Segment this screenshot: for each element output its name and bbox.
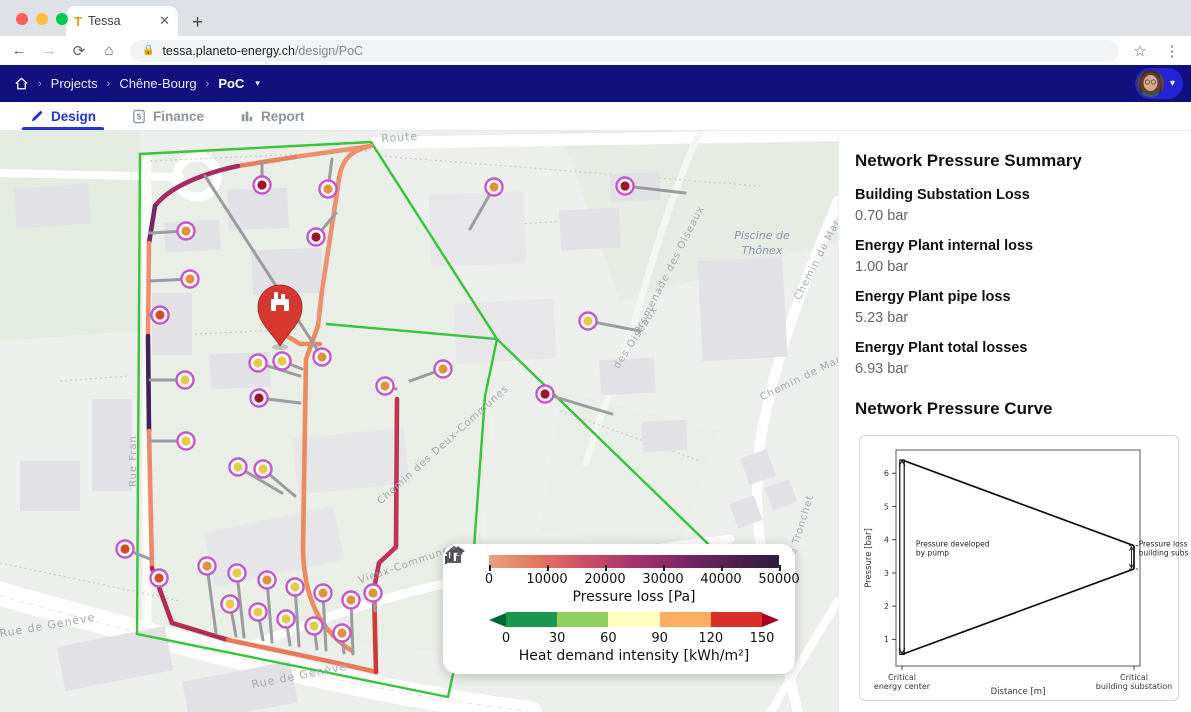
minimize-window-button[interactable]	[36, 13, 48, 25]
curve-title: Network Pressure Curve	[855, 399, 1191, 419]
building-node[interactable]	[152, 307, 169, 324]
building-node[interactable]	[537, 386, 554, 403]
reload-icon[interactable]: ⟳	[70, 42, 88, 60]
browser-tab-title: Tessa	[88, 14, 153, 28]
address-bar[interactable]: 🔒 tessa.planeto-energy.ch/design/PoC	[130, 40, 1119, 62]
building-node[interactable]	[259, 572, 276, 589]
summary-item: Energy Plant total losses 6.93 bar	[855, 340, 1191, 377]
svg-text:5: 5	[884, 502, 889, 511]
building-node[interactable]	[254, 177, 271, 194]
bar-chart-icon	[240, 109, 254, 123]
heat-colorbar	[489, 612, 779, 627]
building-node[interactable]	[182, 271, 199, 288]
colorbar-tick-label: 90	[651, 631, 668, 646]
building-node[interactable]	[199, 558, 216, 575]
colorbar-tick-label: 150	[750, 631, 775, 646]
pressure-curve-card: 123456Pressure [bar]Criticalenergy cente…	[859, 435, 1179, 701]
pressure-colorbar-label: Pressure loss [Pa]	[489, 589, 779, 605]
design-map[interactable]: RoutePromenade des Oiseauxdes OiseauxChe…	[0, 131, 838, 712]
bookmark-star-icon[interactable]: ☆	[1131, 42, 1149, 60]
browser-toolbar: ← → ⟳ ⌂ 🔒 tessa.planeto-energy.ch/design…	[0, 36, 1191, 65]
breadcrumb: › Projects › Chêne-Bourg › PoC ▾	[14, 76, 260, 91]
building-node[interactable]	[278, 611, 295, 628]
summary-item-value: 0.70 bar	[855, 208, 1191, 224]
chevron-down-icon: ▾	[1170, 78, 1175, 89]
building-node[interactable]	[222, 596, 239, 613]
tab-report-label: Report	[261, 109, 305, 124]
building-node[interactable]	[377, 378, 394, 395]
building-node[interactable]	[343, 592, 360, 609]
building-node[interactable]	[315, 585, 332, 602]
breadcrumb-project-current[interactable]: PoC	[218, 76, 244, 91]
building-node[interactable]	[435, 361, 452, 378]
pressure-legend-row: 01000020000300004000050000 Pressure loss…	[455, 555, 779, 605]
svg-text:Distance [m]: Distance [m]	[991, 687, 1046, 697]
building-node[interactable]	[229, 565, 246, 582]
heat-colorbar-ticks: 0306090120150	[506, 631, 762, 646]
tab-design-label: Design	[51, 109, 96, 124]
app-header: › Projects › Chêne-Bourg › PoC ▾ ▾	[0, 65, 1191, 102]
building-node[interactable]	[230, 459, 247, 476]
tab-report[interactable]: Report	[226, 102, 319, 130]
svg-text:Pressure [bar]: Pressure [bar]	[864, 528, 874, 588]
pressure-colorbar	[489, 555, 779, 568]
chevron-down-icon[interactable]: ▾	[255, 78, 260, 89]
colorbar-tick-label: 10000	[526, 572, 567, 587]
svg-text:3: 3	[884, 569, 889, 578]
building-node[interactable]	[151, 570, 168, 587]
svg-text:$: $	[137, 111, 142, 121]
building-node[interactable]	[365, 585, 382, 602]
summary-item-value: 1.00 bar	[855, 259, 1191, 275]
building-node[interactable]	[617, 178, 634, 195]
colorbar-tick-label: 30	[549, 631, 566, 646]
summary-item-label: Energy Plant internal loss	[855, 238, 1191, 254]
building-node[interactable]	[117, 541, 134, 558]
window-controls[interactable]	[16, 13, 68, 25]
pressure-curve-chart: 123456Pressure [bar]Criticalenergy cente…	[862, 438, 1188, 698]
colorbar-tick-label: 0	[485, 572, 493, 587]
building-node[interactable]	[486, 179, 503, 196]
url-path: /design/PoC	[295, 44, 363, 58]
summary-title: Network Pressure Summary	[855, 151, 1191, 171]
pencil-icon	[30, 109, 44, 123]
breadcrumb-city[interactable]: Chêne-Bourg	[119, 76, 196, 91]
building-node[interactable]	[334, 625, 351, 642]
map-legend: 01000020000300004000050000 Pressure loss…	[443, 544, 795, 674]
building-node[interactable]	[251, 390, 268, 407]
zoom-window-button[interactable]	[56, 13, 68, 25]
colorbar-tick-label: 120	[698, 631, 723, 646]
favicon: T	[74, 14, 82, 29]
svg-text:2: 2	[884, 602, 889, 611]
heat-legend-row: 0306090120150 Heat demand intensity [kWh…	[455, 612, 779, 664]
summary-item-label: Energy Plant total losses	[855, 340, 1191, 356]
svg-text:Pressure lossbuilding substati: Pressure lossbuilding substation	[1139, 539, 1188, 557]
building-node[interactable]	[314, 349, 331, 366]
building-node[interactable]	[306, 618, 323, 635]
building-node[interactable]	[320, 181, 337, 198]
svg-text:6: 6	[884, 469, 889, 478]
svg-text:1: 1	[884, 635, 889, 644]
browser-tab-strip: T Tessa ✕ +	[0, 0, 1191, 36]
pressure-panel: Network Pressure Summary Building Substa…	[838, 131, 1191, 712]
home-icon[interactable]: ⌂	[100, 42, 118, 59]
tab-finance[interactable]: $ Finance	[118, 102, 218, 130]
svg-text:Criticalbuilding substation: Criticalbuilding substation	[1096, 673, 1172, 691]
building-node[interactable]	[308, 229, 325, 246]
profile-menu[interactable]: ▾	[1135, 68, 1183, 99]
url-host: tessa.planeto-energy.ch	[162, 44, 295, 58]
tab-finance-label: Finance	[153, 109, 204, 124]
new-tab-button[interactable]: +	[192, 13, 203, 32]
summary-item: Energy Plant pipe loss 5.23 bar	[855, 289, 1191, 326]
building-node[interactable]	[250, 604, 267, 621]
building-node[interactable]	[287, 579, 304, 596]
summary-item-value: 5.23 bar	[855, 310, 1191, 326]
breadcrumb-projects[interactable]: Projects	[51, 76, 98, 91]
breadcrumb-home-icon[interactable]	[14, 76, 29, 91]
back-icon[interactable]: ←	[10, 42, 28, 59]
pressure-colorbar-ticks: 01000020000300004000050000	[489, 572, 779, 587]
chevron-right-icon: ›	[107, 78, 111, 90]
tab-close-icon[interactable]: ✕	[159, 13, 170, 29]
summary-item: Building Substation Loss 0.70 bar	[855, 187, 1191, 224]
tab-design[interactable]: Design	[16, 102, 110, 130]
summary-item: Energy Plant internal loss 1.00 bar	[855, 238, 1191, 275]
building-node[interactable]	[580, 313, 597, 330]
building-node[interactable]	[255, 461, 272, 478]
app-tab-bar: Design $ Finance Report	[0, 102, 1191, 131]
building-node[interactable]	[178, 433, 195, 450]
colorbar-tick-label: 40000	[700, 572, 741, 587]
building-node[interactable]	[178, 223, 195, 240]
building-node[interactable]	[250, 355, 267, 372]
browser-tab[interactable]: T Tessa ✕	[66, 6, 178, 36]
chevron-right-icon: ›	[206, 78, 210, 90]
padlock-icon[interactable]: 🔒	[142, 45, 154, 56]
svg-text:Criticalenergy center: Criticalenergy center	[874, 673, 931, 691]
colorbar-tick-label: 20000	[584, 572, 625, 587]
summary-item-label: Building Substation Loss	[855, 187, 1191, 203]
street-label: Rue Fran	[128, 435, 139, 487]
house-icon	[455, 612, 479, 614]
avatar	[1137, 70, 1164, 97]
summary-item-value: 6.93 bar	[855, 361, 1191, 377]
building-node[interactable]	[274, 353, 291, 370]
building-node[interactable]	[177, 372, 194, 389]
colorbar-tick-label: 60	[600, 631, 617, 646]
summary-item-label: Energy Plant pipe loss	[855, 289, 1191, 305]
chevron-right-icon: ›	[38, 78, 42, 90]
forward-icon[interactable]: →	[40, 42, 58, 59]
finance-doc-icon: $	[132, 109, 146, 124]
heat-colorbar-label: Heat demand intensity [kWh/m²]	[489, 648, 779, 664]
url-text: tessa.planeto-energy.ch/design/PoC	[162, 44, 363, 58]
browser-menu-icon[interactable]: ⋮	[1163, 42, 1181, 60]
colorbar-tick-label: 0	[502, 631, 510, 646]
colorbar-tick-label: 30000	[642, 572, 683, 587]
svg-text:4: 4	[884, 536, 889, 545]
close-window-button[interactable]	[16, 13, 28, 25]
colorbar-tick-label: 50000	[758, 572, 799, 587]
